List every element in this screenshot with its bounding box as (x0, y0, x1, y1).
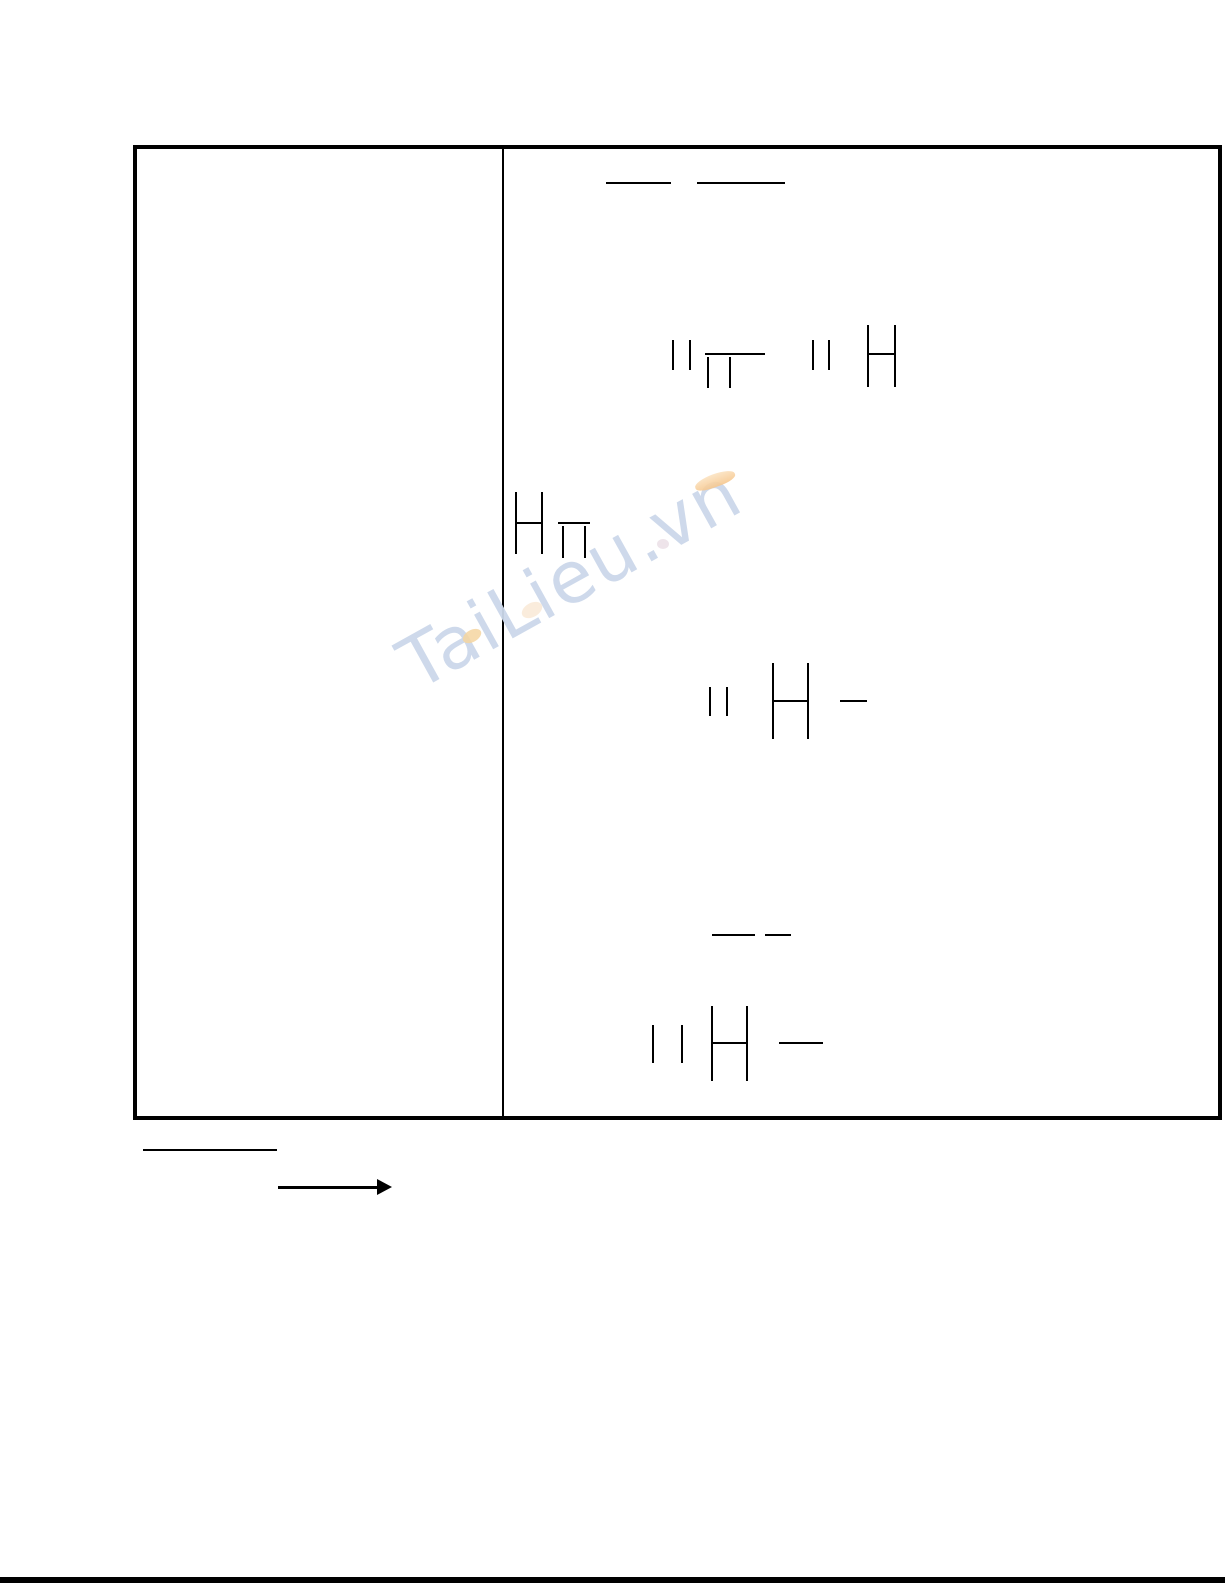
v-line (894, 325, 896, 387)
v-line (726, 687, 728, 716)
page-footer-rule (0, 1577, 1225, 1583)
v-line (689, 340, 691, 370)
v-line (867, 325, 869, 387)
reaction-arrow-shaft (278, 1186, 379, 1189)
h-line (697, 182, 785, 184)
h-line (779, 1042, 823, 1044)
content-table (133, 145, 1222, 1120)
v-line (729, 357, 731, 388)
table-cell-left (137, 149, 502, 1116)
v-line (828, 340, 830, 370)
arrow-head-icon (377, 1179, 392, 1195)
v-line (562, 526, 564, 558)
h-line (765, 934, 791, 936)
h-line (869, 353, 894, 355)
v-line (672, 340, 674, 370)
v-line (709, 687, 711, 716)
document-page: { "page": { "background": "#ffffff" }, "… (0, 0, 1225, 1585)
h-line (774, 700, 807, 702)
h-line (840, 700, 867, 702)
h-line (517, 522, 541, 524)
v-line (584, 526, 586, 558)
v-line (541, 492, 543, 554)
underline-rule (143, 1149, 277, 1151)
h-line (606, 182, 671, 184)
v-line (807, 663, 809, 739)
h-line (705, 353, 765, 355)
h-line (712, 934, 755, 936)
table-cell-right (504, 149, 1218, 1116)
v-line (707, 357, 709, 388)
h-line (558, 522, 590, 524)
v-line (652, 1025, 654, 1063)
h-line (713, 1042, 747, 1044)
v-line (812, 340, 814, 370)
v-line (681, 1025, 683, 1063)
